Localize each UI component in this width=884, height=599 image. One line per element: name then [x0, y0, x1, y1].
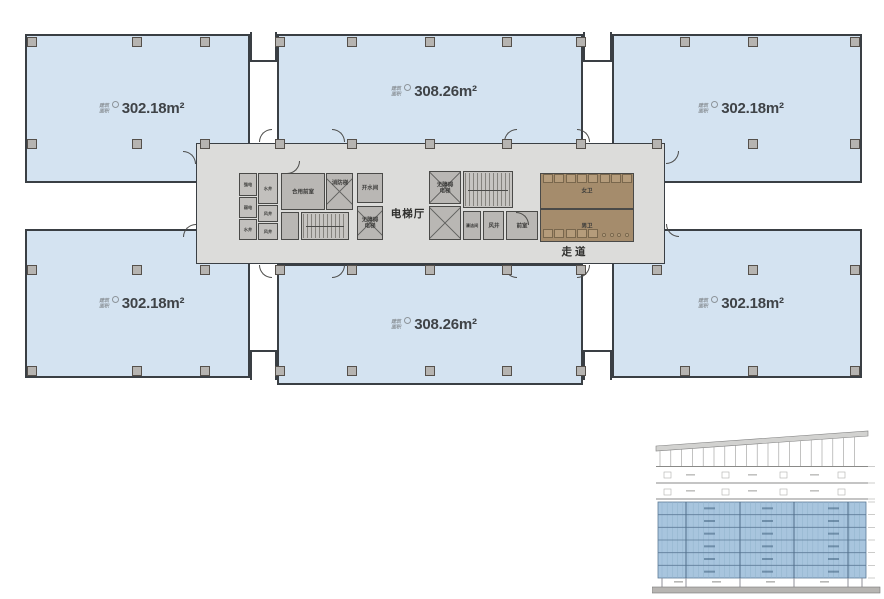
room-label: 女卫 — [582, 188, 593, 194]
area-label: 建筑面积 302.18m² — [690, 293, 784, 314]
area-value: 302.18m² — [122, 295, 185, 312]
shaft-label: 强电 — [244, 182, 252, 187]
shaft-room: 水井 — [258, 173, 278, 204]
column-marker — [502, 265, 512, 275]
column-marker — [200, 366, 210, 376]
toilet-stall — [622, 174, 632, 183]
area-label: 建筑面积 302.18m² — [91, 293, 185, 314]
stair-right — [463, 171, 513, 208]
column-marker — [275, 265, 285, 275]
shaft-room: 弱电 — [239, 197, 257, 218]
room-label: 无障碍电梯 — [435, 181, 455, 193]
area-prefix-line2: 面积 — [99, 109, 109, 115]
area-value: 302.18m² — [721, 295, 784, 312]
toilet-stall — [611, 174, 621, 183]
stair-rail — [468, 190, 508, 191]
air-shaft: 风井 — [483, 211, 504, 240]
shaft-room: 风井 — [258, 205, 278, 222]
area-label: 建筑面积 302.18m² — [690, 98, 784, 119]
toilet-stall — [588, 174, 598, 183]
column-marker — [200, 139, 210, 149]
fire-stair-elevator: 消防梯 — [326, 173, 353, 210]
building-section-svg — [652, 428, 882, 594]
shaft-room: 风井 — [258, 223, 278, 240]
entry-recess-top-right — [583, 32, 612, 62]
column-marker — [425, 366, 435, 376]
stair-left — [301, 212, 349, 240]
shaft-room: 水井 — [239, 219, 257, 240]
column-marker — [850, 37, 860, 47]
column-marker — [27, 139, 37, 149]
area-info-icon — [711, 101, 718, 108]
column-marker — [132, 265, 142, 275]
shaft-label: 风井 — [264, 211, 272, 216]
area-label-prefix: 建筑面积 — [99, 103, 109, 114]
column-marker — [850, 265, 860, 275]
room-label: 无障碍电梯 — [360, 217, 380, 229]
column-marker — [347, 366, 357, 376]
accessible-elevator-left: 无障碍电梯 — [357, 206, 383, 240]
column-marker — [680, 366, 690, 376]
entry-recess-bottom-left — [250, 350, 277, 380]
service-core: 强电 弱电 水井 水井 风井 风井 合用前室 消防梯 开水间 无障碍电梯 无障碍… — [196, 143, 665, 264]
column-marker — [347, 265, 357, 275]
toilet-stall — [577, 174, 587, 183]
corridor-label: 走道 — [545, 244, 605, 259]
area-info-icon — [112, 296, 119, 303]
column-marker — [680, 37, 690, 47]
toilet-stall — [543, 229, 553, 238]
area-label-prefix: 建筑面积 — [698, 298, 708, 309]
unit-room-top-middle[interactable]: 建筑面积 308.26m² — [277, 34, 583, 148]
column-marker — [132, 366, 142, 376]
room-label: 男卫 — [582, 222, 593, 228]
shaft-label: 水井 — [264, 186, 272, 191]
area-info-icon — [711, 296, 718, 303]
area-info-icon — [404, 84, 411, 91]
entry-recess-top-left — [250, 32, 277, 62]
toilet-stall — [543, 174, 553, 183]
column-marker — [576, 139, 586, 149]
room-label: 清洁间 — [466, 223, 479, 228]
column-marker — [850, 366, 860, 376]
column-marker — [502, 366, 512, 376]
column-marker — [200, 265, 210, 275]
shaft-label: 水井 — [244, 227, 252, 232]
column-marker — [850, 139, 860, 149]
area-value: 302.18m² — [721, 100, 784, 117]
area-value: 308.26m² — [414, 316, 477, 333]
service-room — [281, 212, 299, 240]
area-prefix-line2: 面积 — [99, 304, 109, 310]
shaft-label: 弱电 — [244, 205, 252, 210]
area-prefix-line1: 建筑 — [391, 85, 401, 91]
column-marker — [132, 139, 142, 149]
urinal — [617, 233, 621, 237]
room-label: 合用前室 — [292, 188, 314, 194]
area-value: 308.26m² — [414, 83, 477, 100]
door-arc — [259, 129, 272, 142]
area-prefix-line2: 面积 — [698, 109, 708, 115]
column-marker — [275, 366, 285, 376]
column-marker — [652, 265, 662, 275]
toilet-stall — [588, 229, 598, 238]
cleaning-room: 清洁间 — [463, 211, 481, 240]
column-marker — [748, 37, 758, 47]
column-marker — [652, 139, 662, 149]
door-arc — [183, 224, 196, 237]
area-label: 建筑面积 308.26m² — [383, 314, 477, 335]
column-marker — [27, 265, 37, 275]
toilet-stall — [554, 229, 564, 238]
area-value: 302.18m² — [122, 100, 185, 117]
column-marker — [132, 37, 142, 47]
column-marker — [425, 37, 435, 47]
elevator-hall-label: 电梯厅 — [383, 206, 433, 221]
floor-plan: 建筑面积 302.18m² 建筑面积 308.26m² 建筑面积 302.18m… — [0, 0, 884, 599]
column-marker — [347, 37, 357, 47]
area-prefix-line2: 面积 — [391, 91, 401, 97]
hot-water-room: 开水间 — [357, 173, 383, 203]
column-marker — [425, 265, 435, 275]
toilet-stall — [577, 229, 587, 238]
column-marker — [748, 366, 758, 376]
urinal — [610, 233, 614, 237]
building-section-diagram — [652, 428, 882, 594]
column-marker — [502, 37, 512, 47]
area-label-prefix: 建筑面积 — [391, 85, 401, 96]
column-marker — [576, 265, 586, 275]
column-marker — [425, 139, 435, 149]
area-prefix-line2: 面积 — [698, 304, 708, 310]
room-label: 风井 — [488, 222, 499, 228]
area-info-icon — [112, 101, 119, 108]
column-marker — [576, 37, 586, 47]
entry-recess-bottom-right — [583, 350, 612, 380]
shaft-label: 风井 — [264, 229, 272, 234]
stair-rail — [306, 226, 345, 227]
area-label-prefix: 建筑面积 — [698, 103, 708, 114]
door-arc — [259, 265, 272, 278]
area-info-icon — [404, 317, 411, 324]
column-marker — [275, 139, 285, 149]
toilet-stall — [566, 174, 576, 183]
column-marker — [27, 366, 37, 376]
urinal — [602, 233, 606, 237]
column-marker — [200, 37, 210, 47]
elevator-shaft — [429, 206, 461, 240]
area-label-prefix: 建筑面积 — [391, 319, 401, 330]
area-prefix-line2: 面积 — [391, 325, 401, 331]
column-marker — [502, 139, 512, 149]
urinal — [625, 233, 629, 237]
accessible-elevator-right: 无障碍电梯 — [429, 171, 461, 204]
area-label: 建筑面积 302.18m² — [91, 98, 185, 119]
column-marker — [748, 139, 758, 149]
toilet-stall — [554, 174, 564, 183]
room-label: 消防梯 — [331, 180, 348, 186]
column-marker — [275, 37, 285, 47]
room-label: 开水间 — [362, 185, 379, 191]
column-marker — [576, 366, 586, 376]
toilet-stall — [566, 229, 576, 238]
column-marker — [347, 139, 357, 149]
area-label: 建筑面积 308.26m² — [383, 81, 477, 102]
column-marker — [27, 37, 37, 47]
area-label-prefix: 建筑面积 — [99, 298, 109, 309]
shaft-room: 强电 — [239, 173, 257, 196]
toilet-stall — [600, 174, 610, 183]
column-marker — [748, 265, 758, 275]
shared-front-room: 合用前室 — [281, 173, 325, 210]
